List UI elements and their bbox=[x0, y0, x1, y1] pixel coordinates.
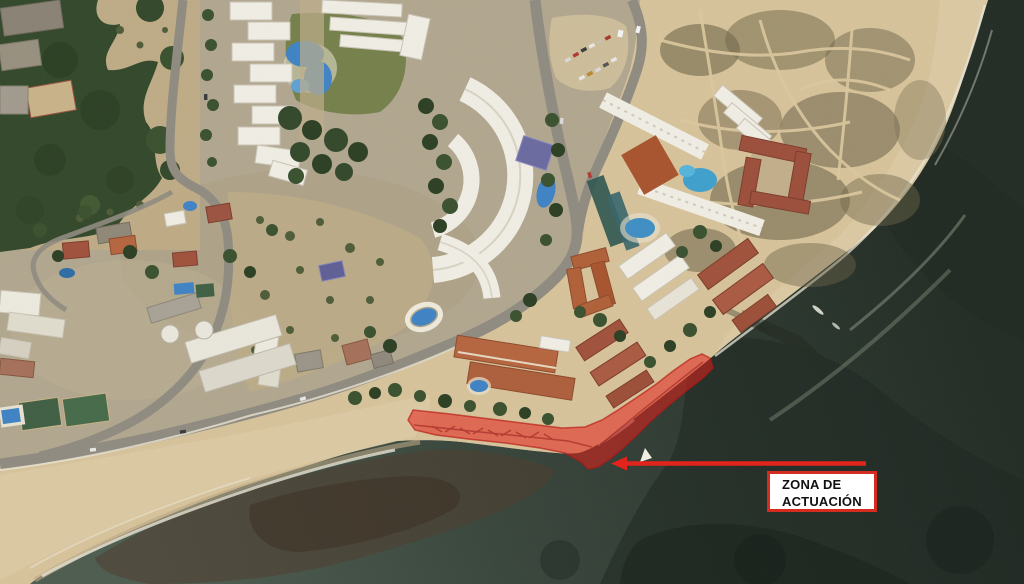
zona-label-line1: ZONA DE bbox=[782, 476, 874, 493]
aerial-photo-figure: ZONA DE ACTUACIÓN bbox=[0, 0, 1024, 584]
zona-de-actuacion-label-box: ZONA DE ACTUACIÓN bbox=[767, 471, 877, 512]
zona-label-line2: ACTUACIÓN bbox=[782, 493, 874, 510]
